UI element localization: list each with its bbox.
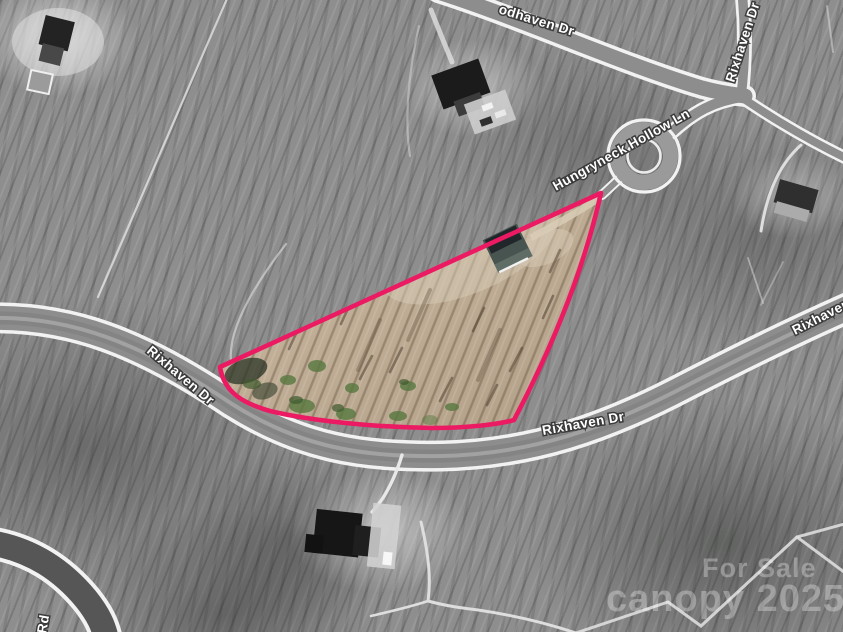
house-right bbox=[771, 179, 819, 223]
street-label-rd-partial: Rd bbox=[34, 613, 52, 632]
map-overlay: odhaven Dr Rixhaven Dr Hungryneck Hollow… bbox=[0, 0, 843, 632]
house-bottom bbox=[304, 503, 401, 570]
watermark-canopy-2025: canopy 2025 bbox=[606, 578, 843, 620]
parcel-area bbox=[205, 173, 615, 440]
house-top-center bbox=[431, 59, 516, 135]
watermark: For Sale canopy 2025 bbox=[606, 553, 843, 620]
driveway-top-house bbox=[431, 10, 452, 62]
aerial-map[interactable]: odhaven Dr Rixhaven Dr Hungryneck Hollow… bbox=[0, 0, 843, 632]
house-top-left bbox=[12, 8, 104, 94]
